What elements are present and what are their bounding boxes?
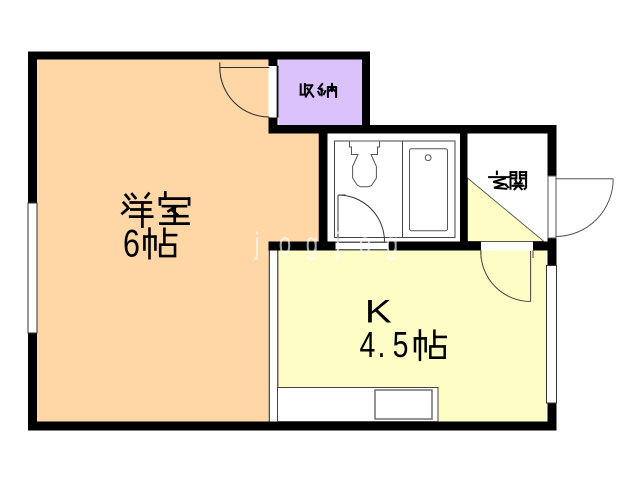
svg-text:j: j <box>335 226 341 260</box>
svg-text:.: . <box>378 324 386 365</box>
svg-text:o: o <box>359 226 371 260</box>
svg-text:6: 6 <box>123 222 140 265</box>
svg-text:g: g <box>306 226 318 260</box>
svg-text:4: 4 <box>360 324 376 365</box>
svg-text:5: 5 <box>393 324 409 365</box>
svg-text:o: o <box>279 226 291 260</box>
svg-text:g: g <box>386 226 398 260</box>
svg-text:j: j <box>254 226 260 260</box>
